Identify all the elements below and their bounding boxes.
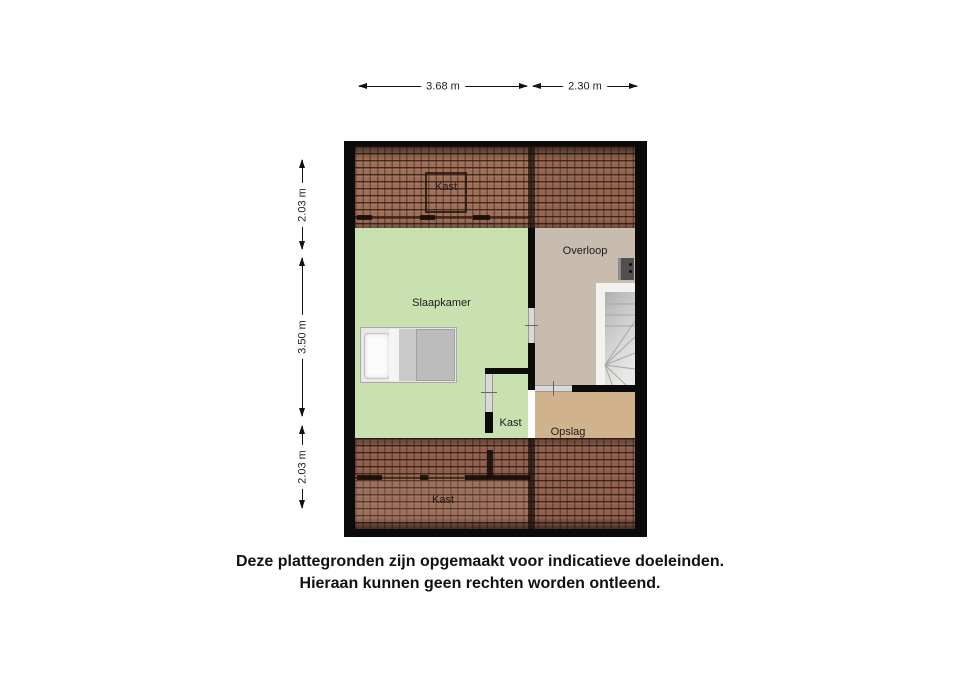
knee-wall-segment [420, 215, 435, 220]
room-label-opslag: Opslag [535, 426, 601, 438]
disclaimer-line-1: Deze plattegronden zijn opgemaakt voor i… [0, 551, 960, 573]
wall-overloop-opslag [572, 385, 635, 392]
dimension-left-top: 2.03 m [296, 159, 309, 250]
dimension-top-left: 3.68 m [358, 80, 528, 93]
arrow-down-icon [299, 500, 305, 509]
knee-wall-segment [465, 475, 530, 480]
roof-top [355, 146, 635, 228]
wall-outer-top [344, 141, 647, 146]
arrow-down-icon [299, 241, 305, 250]
wall-outer-bottom [344, 529, 647, 537]
unit-dot-icon [629, 263, 632, 266]
wall-main-upper [528, 228, 535, 308]
unit-dot-icon [629, 270, 632, 273]
bed-blanket-edge [399, 329, 416, 381]
roof-bottom-divider-wall [528, 438, 535, 529]
dimension-left-bottom: 2.03 m [296, 425, 309, 509]
roof-bottom [355, 438, 635, 529]
roof-top-divider-wall [528, 146, 535, 228]
arrow-right-icon [519, 83, 528, 89]
wall-outer-left [344, 141, 355, 537]
arrow-up-icon [299, 257, 305, 266]
knee-wall-segment [357, 475, 382, 480]
wall-kast-left [485, 412, 493, 433]
door-tick [525, 325, 538, 326]
mechanical-unit [618, 258, 634, 280]
bed [360, 327, 457, 383]
arrow-right-icon [629, 83, 638, 89]
dimension-label: 2.30 m [563, 80, 607, 93]
door-tick [553, 381, 554, 396]
room-label-kast-bottom: Kast [383, 494, 503, 506]
bed-sheet-fold [389, 329, 399, 381]
arrow-left-icon [532, 83, 541, 89]
knee-wall-segment [473, 215, 490, 220]
room-label-slaapkamer: Slaapkamer [355, 297, 528, 309]
room-label-kast-middle: Kast [493, 417, 528, 429]
dimension-label: 3.68 m [421, 80, 465, 93]
dimension-label: 2.03 m [296, 183, 309, 227]
arrow-up-icon [299, 159, 305, 168]
stairs [596, 283, 635, 387]
knee-wall-segment [357, 215, 372, 220]
room-label-overloop: Overloop [535, 245, 635, 257]
arrow-down-icon [299, 408, 305, 417]
floor-plan-page: 3.68 m 2.30 m 2.03 m 3.50 m 2.03 m [0, 0, 960, 679]
dimension-label: 3.50 m [296, 315, 309, 359]
arrow-up-icon [299, 425, 305, 434]
arrow-left-icon [358, 83, 367, 89]
disclaimer-line-2: Hieraan kunnen geen rechten worden ontle… [0, 573, 960, 595]
bed-blanket [416, 329, 455, 381]
stairs-icon [596, 283, 635, 387]
door-kast [485, 374, 493, 412]
knee-wall-line-top [355, 217, 530, 219]
disclaimer: Deze plattegronden zijn opgemaakt voor i… [0, 551, 960, 595]
dimension-top-right: 2.30 m [532, 80, 638, 93]
wall-outer-right [635, 141, 647, 537]
floor-plan: Kast Slaapkamer Overloop Kast Opslag Kas… [344, 141, 647, 537]
room-label-kast-top: Kast [425, 181, 467, 193]
dimension-label: 2.03 m [296, 445, 309, 489]
dimension-left-middle: 3.50 m [296, 257, 309, 417]
knee-wall-segment [420, 475, 428, 480]
door-tick [481, 392, 497, 393]
wall-main-lower [528, 343, 535, 390]
knee-wall-segment [487, 450, 493, 477]
bed-pillow [364, 333, 390, 379]
